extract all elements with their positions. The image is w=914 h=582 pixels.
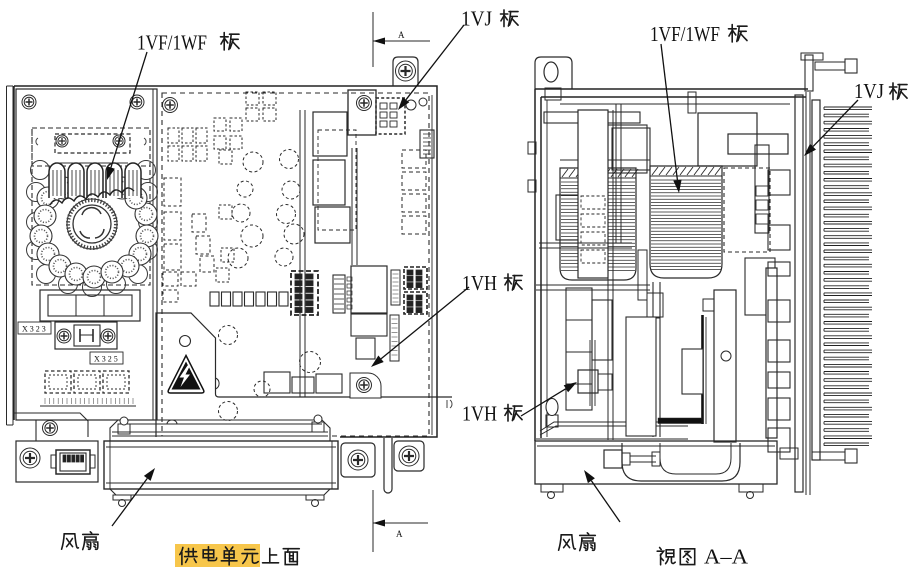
svg-text:A–A: A–A: [704, 545, 749, 569]
svg-text:1VH: 1VH: [462, 271, 497, 295]
svg-text:A: A: [396, 529, 403, 539]
svg-text:1VF/1WF: 1VF/1WF: [650, 22, 720, 46]
svg-text:1VJ: 1VJ: [461, 7, 492, 31]
svg-text:X 3 2 5: X 3 2 5: [94, 355, 118, 364]
svg-text:A: A: [398, 30, 405, 40]
svg-text:1VJ: 1VJ: [854, 79, 884, 103]
svg-text:1VF/1WF: 1VF/1WF: [137, 31, 207, 55]
svg-text:1VH: 1VH: [462, 402, 497, 426]
svg-text:X 3 2 3: X 3 2 3: [22, 325, 46, 334]
